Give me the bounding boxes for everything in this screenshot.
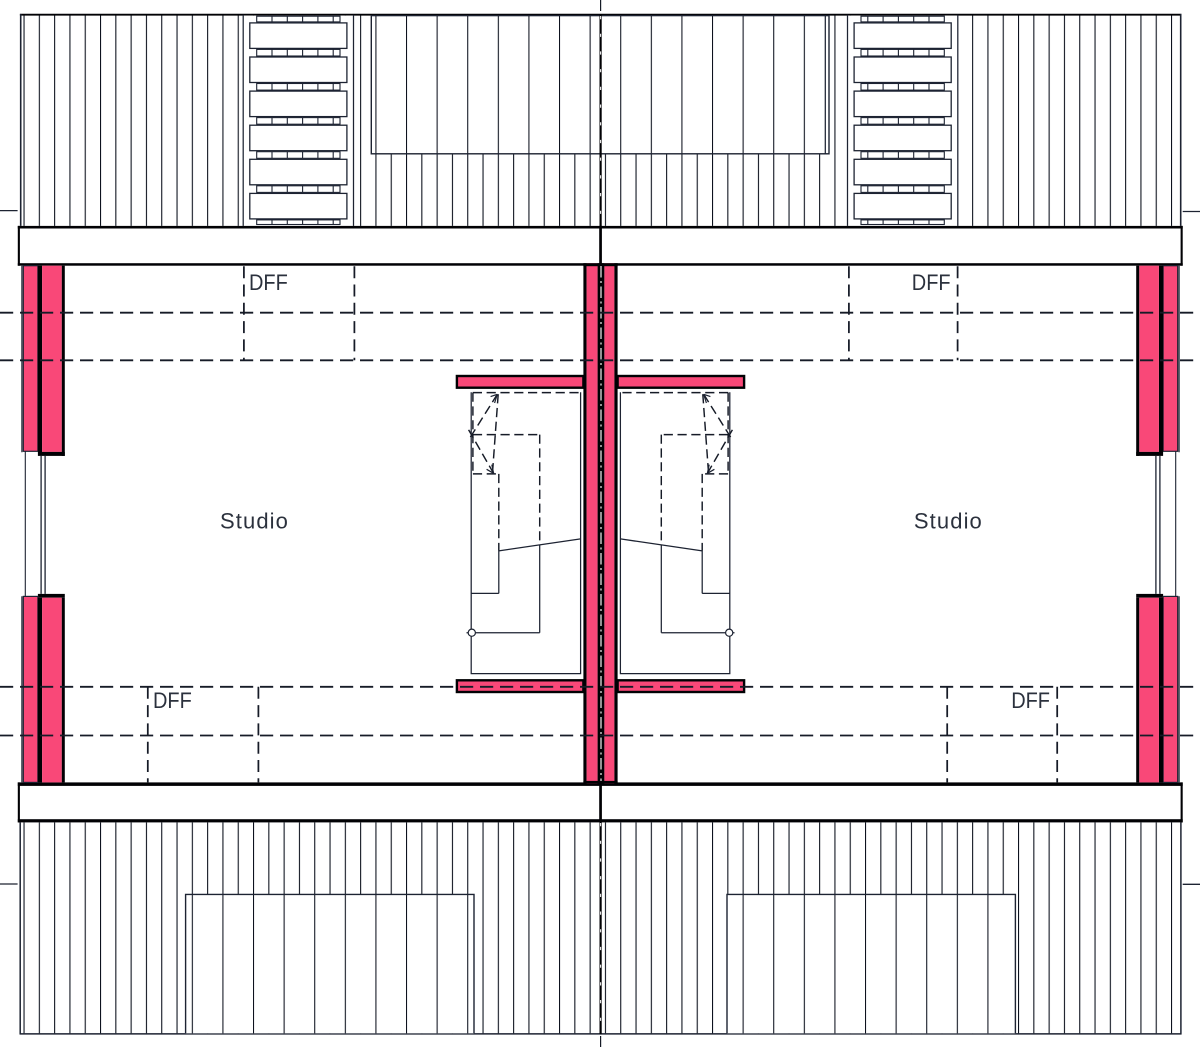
svg-text:DFF: DFF	[249, 270, 288, 295]
svg-text:Studio: Studio	[220, 508, 289, 533]
svg-text:DFF: DFF	[1011, 688, 1050, 713]
svg-text:Studio: Studio	[914, 508, 983, 533]
svg-text:DFF: DFF	[912, 270, 951, 295]
svg-text:DFF: DFF	[153, 688, 192, 713]
